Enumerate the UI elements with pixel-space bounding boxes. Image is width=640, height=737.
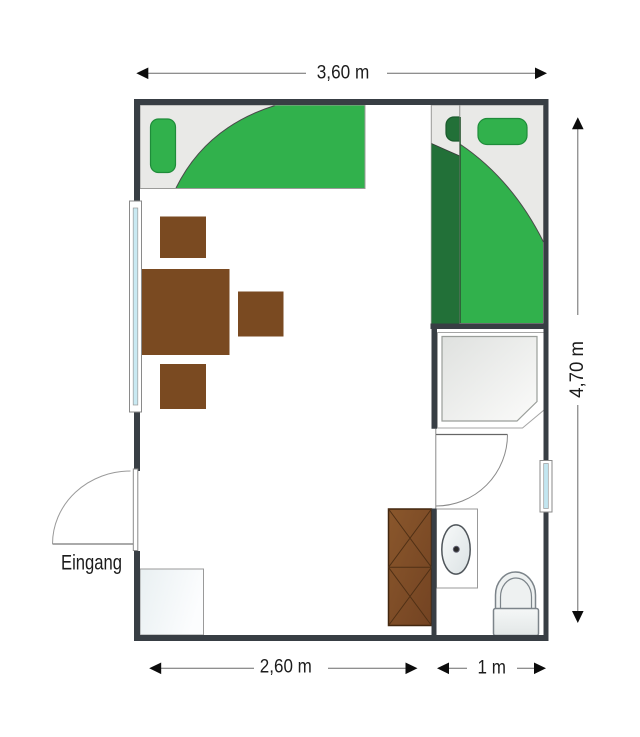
svg-text:2,60 m: 2,60 m (260, 656, 312, 678)
svg-text:3,60 m: 3,60 m (317, 62, 370, 84)
svg-text:Eingang: Eingang (61, 552, 122, 575)
svg-text:1 m: 1 m (478, 656, 506, 678)
svg-text:4,70 m: 4,70 m (566, 341, 588, 398)
